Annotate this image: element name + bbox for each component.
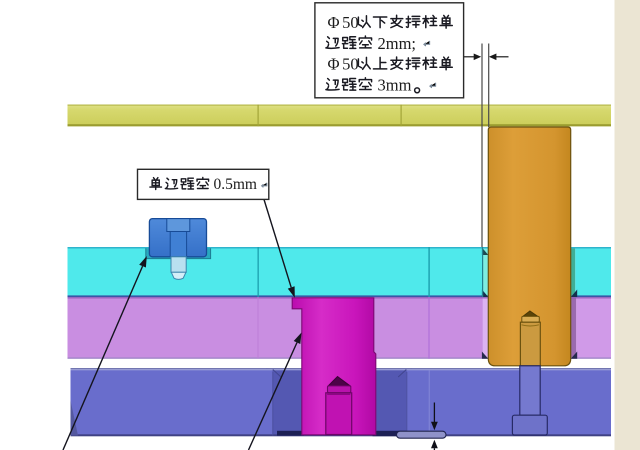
svg-text:0.5mm: 0.5mm xyxy=(214,176,258,193)
svg-text:Φ50: Φ50 xyxy=(328,13,359,32)
svg-text:3mm: 3mm xyxy=(378,76,412,95)
svg-text:Φ50: Φ50 xyxy=(328,55,359,74)
svg-text:2mm;: 2mm; xyxy=(378,34,417,53)
